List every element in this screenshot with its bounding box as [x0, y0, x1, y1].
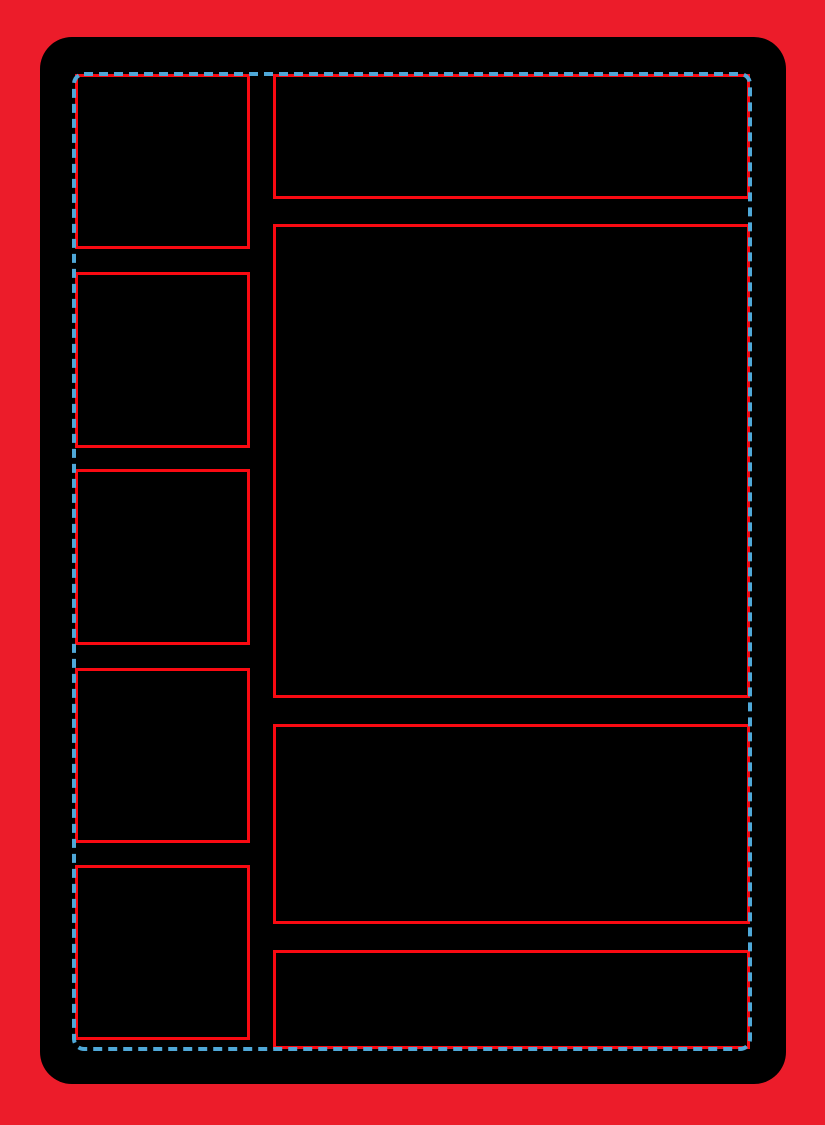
- left-panel-1: [75, 74, 250, 249]
- right-footer-panel: [273, 950, 750, 1049]
- left-panel-3: [75, 469, 250, 645]
- left-panel-2: [75, 272, 250, 448]
- right-header-panel: [273, 74, 750, 199]
- right-main-panel: [273, 224, 750, 698]
- page-background: [0, 0, 825, 1125]
- right-lower-panel: [273, 724, 750, 924]
- left-panel-5: [75, 865, 250, 1040]
- left-panel-4: [75, 668, 250, 843]
